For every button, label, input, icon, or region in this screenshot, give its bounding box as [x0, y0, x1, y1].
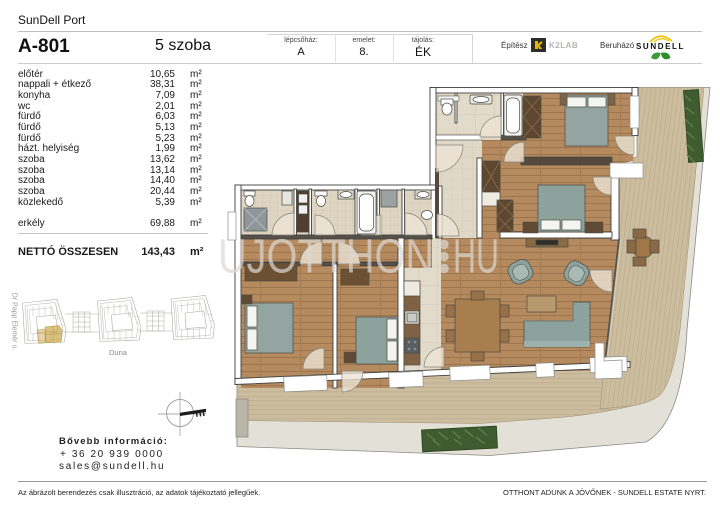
- svg-text:HU: HU: [453, 231, 499, 284]
- svg-text:UJOTTHON: UJOTTHON: [218, 231, 434, 284]
